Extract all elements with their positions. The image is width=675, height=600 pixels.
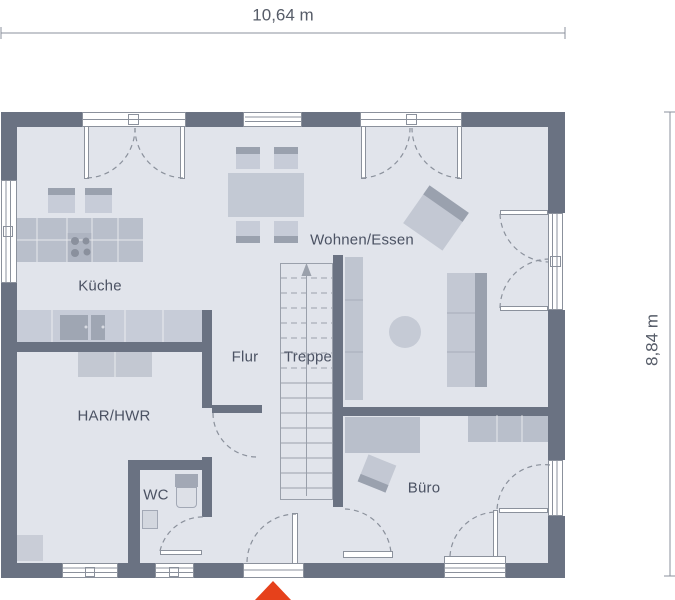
stair-up-arrow-icon [302, 263, 312, 276]
dimension-line-top [1, 27, 565, 39]
room-label-kueche: Küche [78, 279, 122, 294]
room-label-flur: Flur [232, 350, 259, 365]
entrance-arrow-icon [255, 581, 291, 600]
staircase [281, 263, 333, 500]
room-label-wc: WC [143, 488, 168, 503]
window-frame-lines [6, 117, 557, 573]
dimension-height-label: 8,84 m [644, 314, 661, 366]
floor-plan: 10,64 m 8,84 m Küche Wohnen/Essen Flur T… [0, 0, 675, 600]
room-label-har-hwr: HAR/HWR [77, 409, 150, 424]
room-label-wohnen-essen: Wohnen/Essen [310, 233, 414, 248]
dimension-line-right [664, 112, 675, 576]
sofa-sideboard-lines [345, 300, 475, 352]
plan-linework [0, 0, 675, 600]
room-label-treppe: Treppe [284, 350, 332, 365]
room-label-buero: Büro [408, 481, 441, 496]
appliance-knobs [85, 326, 105, 329]
dimension-width-label: 10,64 m [252, 7, 313, 24]
